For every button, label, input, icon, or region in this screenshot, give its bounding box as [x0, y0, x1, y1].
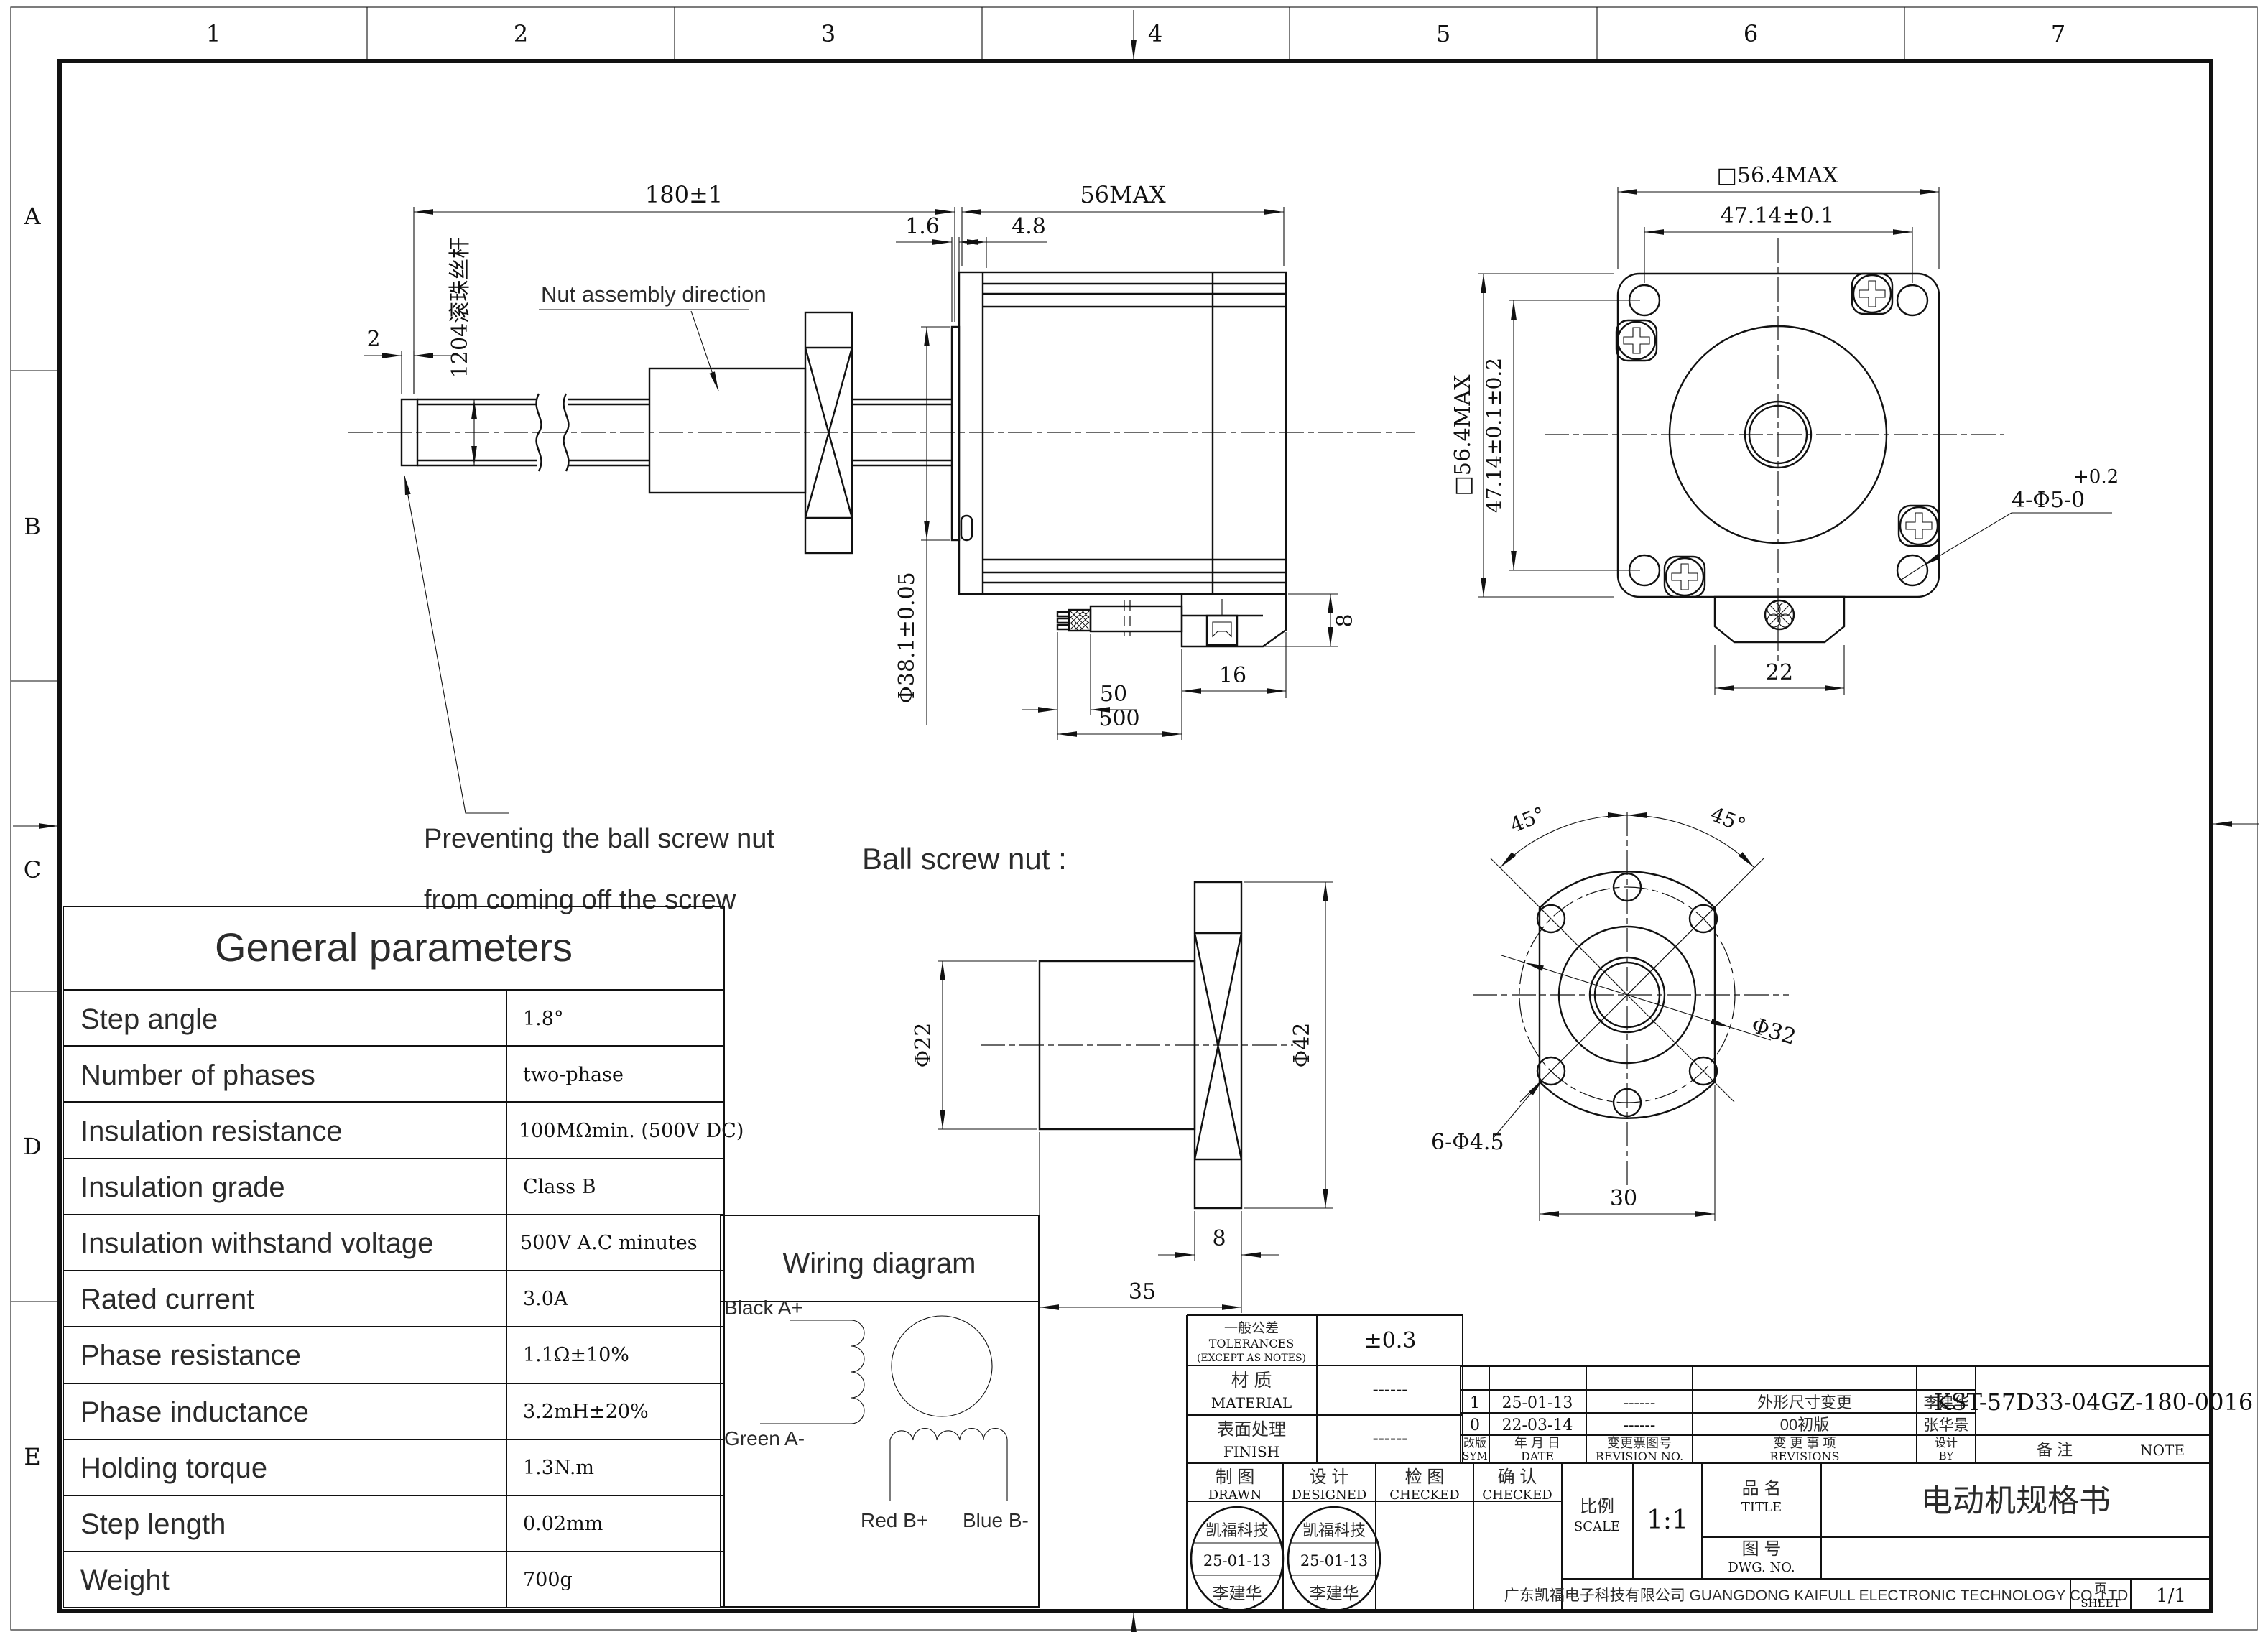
rev-header-sym-en: SYM: [1462, 1450, 1488, 1462]
param-label: Rated current: [80, 1284, 254, 1315]
param-value: Class B: [523, 1176, 596, 1198]
dim-8: 8: [1333, 613, 1358, 627]
dim-nut-d22: Φ22: [911, 1023, 936, 1068]
scale-en: SCALE: [1574, 1519, 1620, 1534]
finish-cn: 表面处理: [1217, 1420, 1286, 1439]
dim-nut-holes: 6-Φ4.5: [1431, 1130, 1504, 1155]
screw-note-line1: Preventing the ball screw nut: [424, 824, 774, 854]
title-value: 电动机规格书: [1921, 1483, 2111, 1518]
drawing-canvas: 1 2 3 4 5 6 7 A B C D E: [0, 0, 2268, 1637]
rev-header-sym-cn: 改版: [1463, 1437, 1486, 1450]
drawing-number: KST-57D33-04GZ-180-0016: [1934, 1388, 2253, 1416]
dim-square-left: □56.4MAX: [1450, 374, 1476, 496]
dim-500: 500: [1098, 706, 1139, 731]
dim-2: 2: [366, 327, 380, 352]
screw-note-line2: from coming off the screw: [424, 885, 736, 915]
wiring-diagram: Wiring diagram Black A+ Green A- Red B+ …: [721, 1215, 1039, 1607]
svg-text:李建华: 李建华: [1213, 1584, 1262, 1603]
dim-holes-tol: +0.2: [2073, 466, 2119, 488]
parameters-title: General parameters: [215, 924, 573, 970]
dim-4714-top: 47.14±0.1: [1721, 203, 1835, 228]
dwgno-en: DWG. NO.: [1728, 1560, 1795, 1575]
rev0-desc: 00初版: [1780, 1416, 1829, 1434]
wiring-black-label: Black A+: [724, 1297, 803, 1319]
title-cn: 品 名: [1742, 1479, 1782, 1498]
dim-22: 22: [1766, 660, 1793, 685]
param-value: 500V A.C minutes: [520, 1232, 698, 1254]
rev-header-rev-cn: 变 更 事 项: [1773, 1436, 1836, 1450]
dim-square-top: □56.4MAX: [1717, 163, 1839, 188]
nut-direction-note: Nut assembly direction: [541, 282, 767, 307]
nut-side-view: Ball screw nut : Φ22 Φ42 8 35: [862, 842, 1333, 1313]
rev-header-date-en: DATE: [1521, 1450, 1554, 1463]
zone-col-7: 7: [2051, 20, 2065, 47]
sheet-value: 1/1: [2156, 1585, 2186, 1607]
rev1-desc: 外形尺寸变更: [1757, 1393, 1852, 1411]
svg-text:25-01-13: 25-01-13: [1203, 1552, 1271, 1569]
dim-1-6: 1.6: [905, 214, 940, 239]
param-label: Step length: [80, 1508, 226, 1540]
material-value: ------: [1373, 1379, 1408, 1399]
param-label: Insulation withstand voltage: [80, 1228, 433, 1259]
dim-nut-30: 30: [1610, 1186, 1637, 1211]
param-value: 1.8°: [523, 1008, 563, 1030]
coil-phase-b: [890, 1429, 1007, 1502]
company-name: 广东凯福电子科技有限公司 GUANGDONG KAIFULL ELECTRONI…: [1504, 1587, 2129, 1604]
param-label: Step angle: [80, 1003, 218, 1035]
rev0-date: 22-03-14: [1502, 1416, 1573, 1434]
zone-row-e: E: [24, 1443, 40, 1470]
param-value: 700g: [523, 1569, 573, 1591]
wiring-green-label: Green A-: [724, 1427, 805, 1450]
zone-col-4: 4: [1148, 20, 1162, 47]
dim-angle-left: 45°: [1506, 802, 1548, 838]
motor-symbol: [892, 1316, 992, 1416]
checked2-cn: 确 认: [1498, 1467, 1537, 1487]
rev1-date: 25-01-13: [1502, 1394, 1573, 1412]
tol-label-cn: 一般公差: [1224, 1320, 1279, 1336]
dim-angle-right: 45°: [1707, 802, 1749, 838]
designed-cn: 设 计: [1310, 1467, 1349, 1487]
rev-header-note-en: NOTE: [2140, 1442, 2185, 1459]
param-label: Insulation resistance: [80, 1116, 343, 1147]
rev1-sym: 1: [1470, 1394, 1480, 1412]
param-label: Number of phases: [80, 1059, 315, 1091]
sheet-cn: 页: [2094, 1582, 2107, 1596]
screw-type-label: 1204滚珠丝杆: [448, 237, 473, 378]
dim-180: 180±1: [645, 181, 723, 208]
finish-value: ------: [1373, 1428, 1408, 1448]
zone-col-1: 1: [206, 20, 221, 47]
wiring-red-label: Red B+: [861, 1509, 928, 1531]
scale-value: 1:1: [1647, 1506, 1688, 1535]
rev0-by: 张华景: [1924, 1417, 1969, 1434]
svg-text:凯福科技: 凯福科技: [1205, 1521, 1269, 1539]
param-value: 1.1Ω±10%: [523, 1344, 629, 1366]
zone-col-5: 5: [1436, 20, 1450, 47]
tol-label-en: TOLERANCES: [1209, 1337, 1295, 1350]
checked1-en: CHECKED: [1389, 1488, 1459, 1503]
dim-nut-35: 35: [1129, 1279, 1156, 1304]
sheet-en: SHEET: [2080, 1597, 2120, 1610]
zone-col-2: 2: [514, 20, 528, 47]
zone-row-a: A: [23, 203, 41, 230]
dim-16: 16: [1219, 663, 1246, 688]
drawn-en: DRAWN: [1208, 1488, 1262, 1503]
zone-row-d: D: [23, 1133, 42, 1160]
parameters-table: General parameters Step angle 1.8° Numbe…: [63, 906, 744, 1608]
rev0-sym: 0: [1470, 1416, 1480, 1434]
wiring-blue-label: Blue B-: [963, 1509, 1029, 1531]
dim-50: 50: [1100, 682, 1127, 707]
rev-header-by-cn: 设计: [1935, 1437, 1958, 1450]
svg-text:25-01-13: 25-01-13: [1300, 1552, 1368, 1569]
param-value: 3.2mH±20%: [523, 1401, 649, 1423]
param-label: Weight: [80, 1564, 170, 1596]
side-view: 180±1 56MAX 1.6 4.8 2 1204滚珠丝杆 Nut assem…: [348, 181, 1415, 915]
sheet-frame: 1 2 3 4 5 6 7 A B C D E: [11, 7, 2259, 1630]
dim-shaft-dia: Φ38.1±0.05: [894, 572, 920, 703]
param-value: 100MΩmin. (500V DC): [519, 1120, 744, 1142]
title-block: 一般公差 TOLERANCES (EXCEPT AS NOTES) ±0.3 材…: [1187, 1315, 2253, 1611]
param-value: 0.02mm: [523, 1513, 603, 1535]
dim-bolt-circle: Φ32: [1749, 1013, 1799, 1050]
param-label: Phase inductance: [80, 1396, 309, 1428]
rev-header-by-en: BY: [1939, 1450, 1955, 1462]
dim-4714-left: 47.14±0.1±0.2: [1482, 358, 1506, 513]
scale-cn: 比例: [1580, 1497, 1614, 1516]
stamp-drawn: 凯福科技 25-01-13 李建华: [1191, 1507, 1283, 1610]
rev0-no: ------: [1624, 1416, 1656, 1434]
tol-value: ±0.3: [1364, 1328, 1417, 1353]
rev1-no: ------: [1624, 1394, 1656, 1412]
rev-header-date-cn: 年 月 日: [1514, 1436, 1560, 1450]
dim-holes: 4-Φ5-0: [2012, 488, 2085, 513]
dwgno-cn: 图 号: [1742, 1539, 1782, 1559]
zone-col-6: 6: [1744, 20, 1758, 47]
designed-en: DESIGNED: [1292, 1488, 1367, 1503]
param-label: Phase resistance: [80, 1340, 301, 1371]
svg-text:凯福科技: 凯福科技: [1302, 1521, 1366, 1539]
tol-label-note: (EXCEPT AS NOTES): [1197, 1353, 1306, 1364]
rev-header-rev-en: REVISIONS: [1770, 1450, 1840, 1463]
material-cn: 材 质: [1231, 1371, 1272, 1391]
dim-nut-d42: Φ42: [1290, 1023, 1315, 1068]
stamp-designed: 凯福科技 25-01-13 李建华: [1288, 1507, 1380, 1610]
dim-4-8: 4.8: [1012, 214, 1046, 239]
dim-nut-8: 8: [1212, 1226, 1226, 1251]
dim-56max: 56MAX: [1080, 181, 1166, 208]
zone-col-3: 3: [821, 20, 836, 47]
rev-header-no-cn: 变更票图号: [1607, 1436, 1672, 1450]
svg-text:李建华: 李建华: [1310, 1584, 1359, 1603]
front-view: □56.4MAX 47.14±0.1 □56.4MAX 47.14±0.1±0.…: [1450, 163, 2119, 695]
nut-front-view: 45° 45° Φ32 6-Φ4.5 30: [1431, 802, 1799, 1221]
param-label: Holding torque: [80, 1452, 267, 1484]
checked2-en: CHECKED: [1482, 1488, 1552, 1503]
zone-row-b: B: [24, 513, 41, 540]
coil-phase-a: [760, 1320, 864, 1424]
wiring-title: Wiring diagram: [783, 1248, 976, 1279]
drawing-sheet: 1 2 3 4 5 6 7 A B C D E: [0, 0, 2268, 1637]
param-label: Insulation grade: [80, 1172, 285, 1203]
checked1-cn: 检 图: [1405, 1467, 1445, 1487]
finish-en: FINISH: [1223, 1443, 1279, 1460]
zone-row-c: C: [24, 856, 41, 884]
param-value: 3.0A: [523, 1288, 568, 1310]
material-en: MATERIAL: [1211, 1394, 1292, 1411]
nut-view-title: Ball screw nut :: [862, 842, 1067, 876]
title-en: TITLE: [1741, 1500, 1782, 1515]
rev-header-note-cn: 备 注: [2037, 1441, 2073, 1459]
param-value: 1.3N.m: [523, 1457, 594, 1479]
rev-header-no-en: REVISION NO.: [1596, 1450, 1683, 1463]
drawn-cn: 制 图: [1216, 1467, 1255, 1487]
param-value: two-phase: [523, 1064, 624, 1086]
